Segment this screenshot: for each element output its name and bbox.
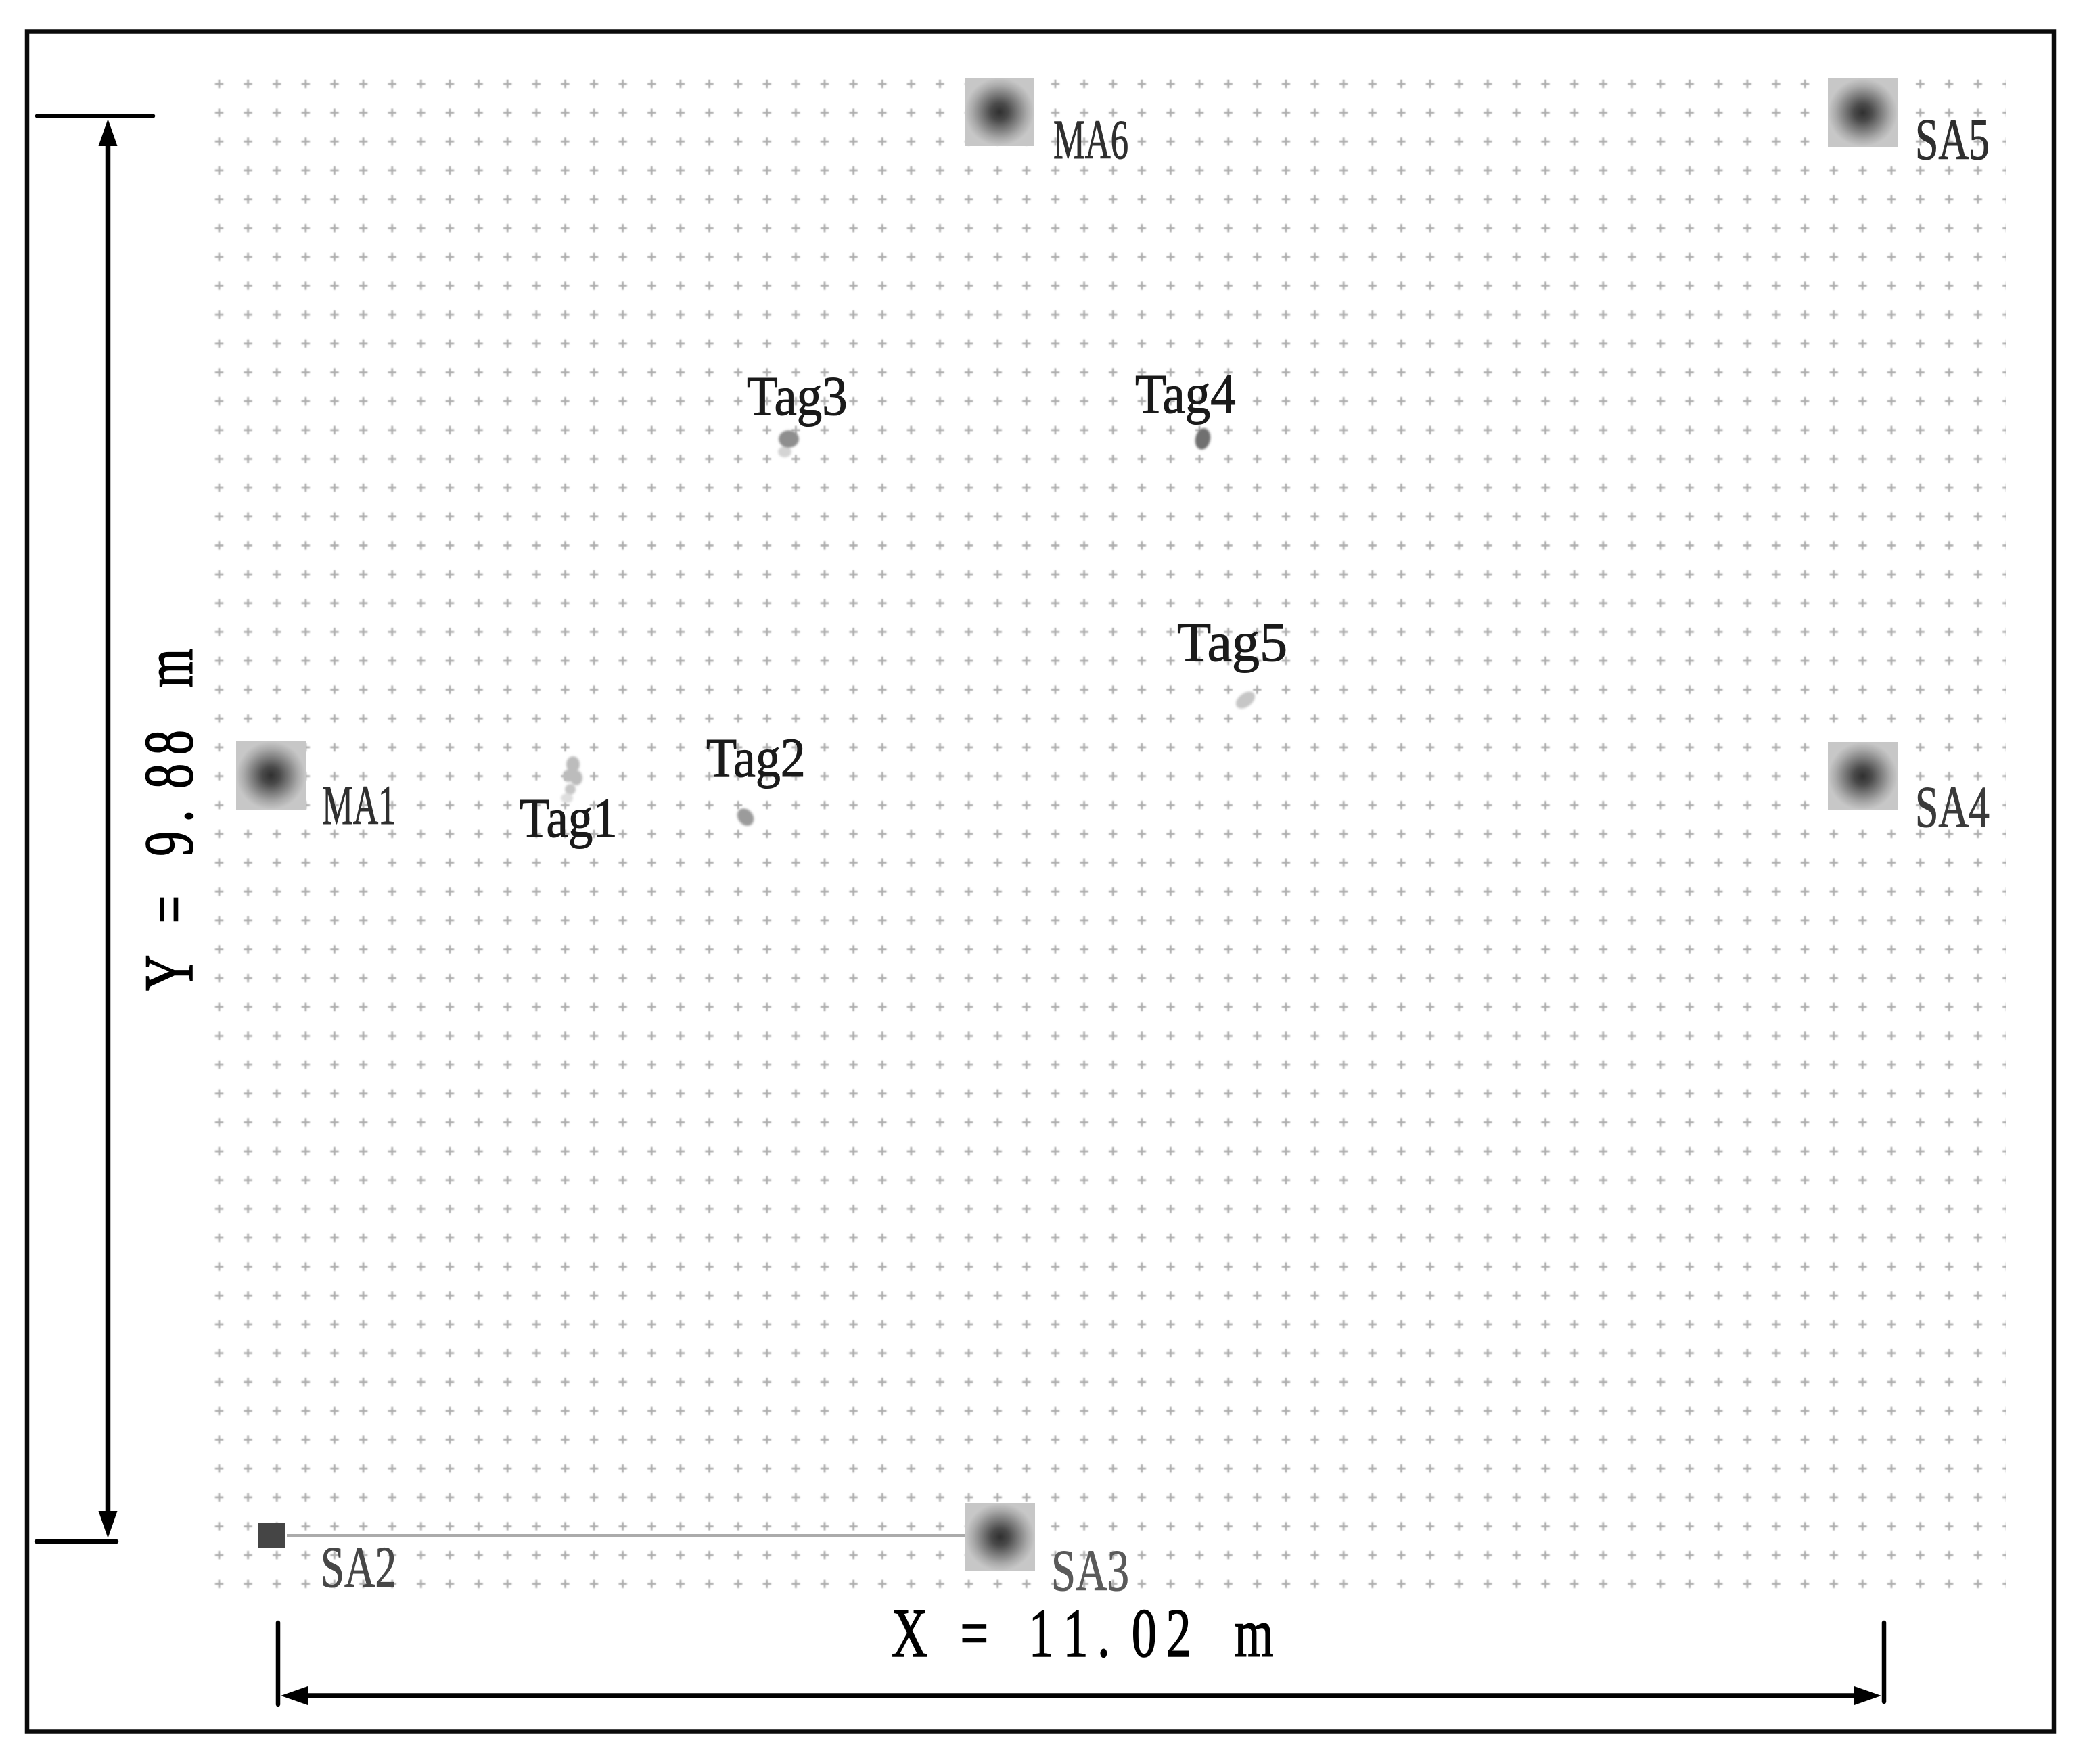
svg-text:SA2: SA2 — [321, 1535, 396, 1600]
svg-text:SA5: SA5 — [1915, 108, 1990, 172]
svg-text:Tag1: Tag1 — [520, 787, 618, 849]
svg-text:SA4: SA4 — [1915, 775, 1990, 840]
svg-text:Tag5: Tag5 — [1177, 611, 1287, 673]
svg-text:Tag2: Tag2 — [706, 727, 806, 789]
svg-text:Tag3: Tag3 — [747, 366, 848, 427]
svg-text:Tag4: Tag4 — [1135, 364, 1236, 425]
svg-text:SA3: SA3 — [1051, 1538, 1129, 1603]
svg-text:MA6: MA6 — [1053, 109, 1128, 171]
svg-text:MA1: MA1 — [322, 774, 396, 836]
